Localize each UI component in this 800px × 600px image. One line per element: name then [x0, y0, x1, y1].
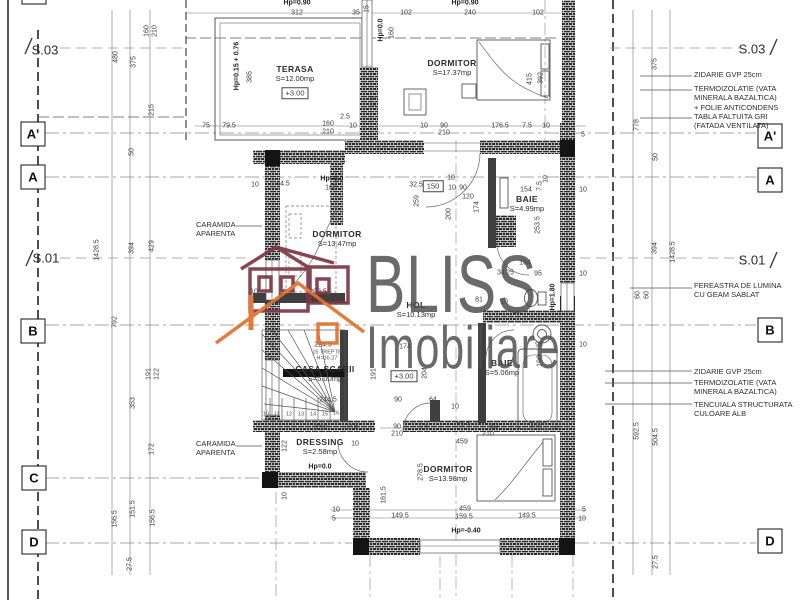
- floorplan-sheet: Hp=0.903123515102Hp=0.90240102Hp=0.0160H…: [0, 0, 800, 600]
- plan-geometry: [0, 0, 800, 600]
